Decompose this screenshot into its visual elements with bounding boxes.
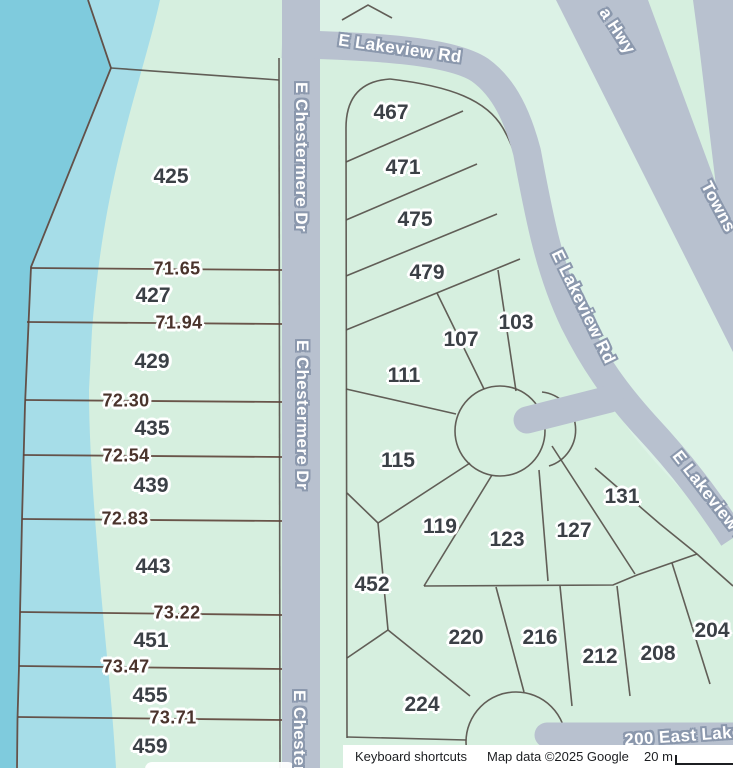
road-e-chestermere-dr bbox=[282, 0, 320, 768]
keyboard-shortcuts-link[interactable]: Keyboard shortcuts bbox=[355, 749, 467, 764]
scale-bar bbox=[675, 755, 733, 765]
map-viewport[interactable]: 4254274294354394434514554594674714754791… bbox=[0, 0, 733, 768]
map-data-attribution: Map data ©2025 Google bbox=[487, 749, 629, 764]
map-canvas[interactable] bbox=[0, 0, 733, 768]
scale-text: 20 m bbox=[644, 749, 673, 764]
attribution-bar: Keyboard shortcuts Map data ©2025 Google… bbox=[343, 745, 733, 768]
clipped-dimension-label bbox=[145, 762, 295, 768]
